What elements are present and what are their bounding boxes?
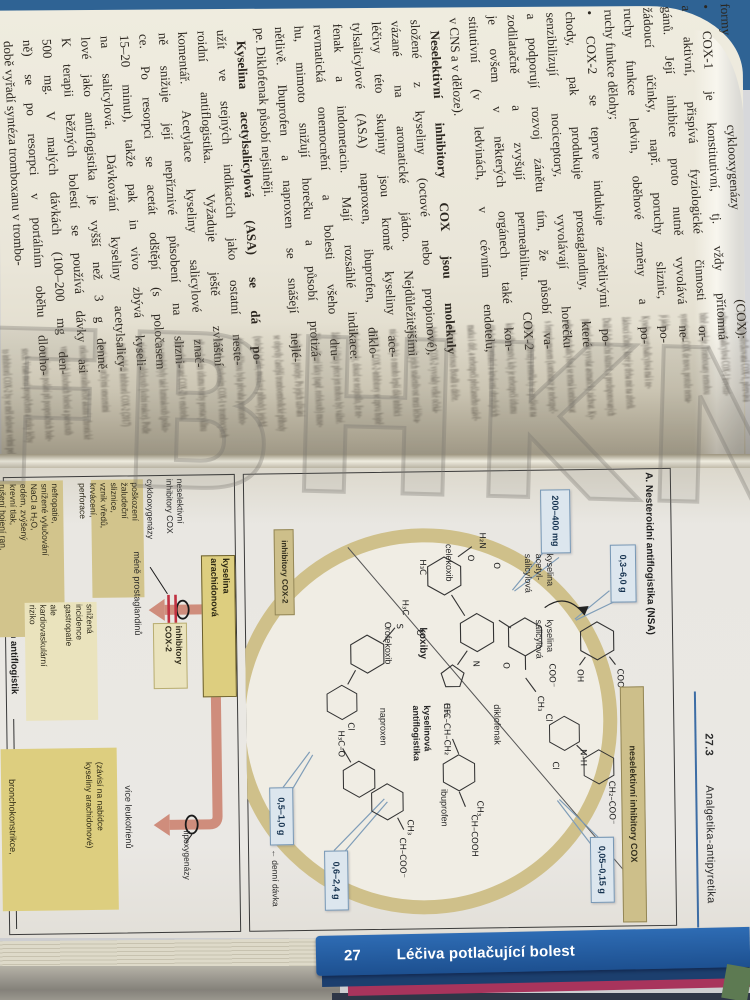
label-bronchokonstrikce: bronchokonstrikce, <box>7 779 18 855</box>
section-number: 27.3 <box>702 733 714 756</box>
label-lipoxygenazy: lipoxygenázy <box>182 831 193 880</box>
dose-box-celekoxib: 200–400 mg <box>540 489 571 553</box>
box-arachidonic-acid: kyselinaarachidonová <box>201 555 237 697</box>
label-vice-leukotrienu: více leukotrienů <box>123 785 134 848</box>
svg-text:COO⁻: COO⁻ <box>546 663 556 687</box>
svg-text:CH₃: CH₃ <box>405 819 415 835</box>
dose-box-naproxen: 0,5–1,0 g <box>269 787 294 845</box>
box-cox2-inhibitors: inhibitoryCOX-2 <box>153 623 188 689</box>
svg-text:N: N <box>470 661 480 667</box>
svg-text:Cl: Cl <box>543 714 553 722</box>
box-reduced-gastropathy: sníženáincidencegastropatie <box>59 602 99 721</box>
box-bronchoconstriction: (závisí na nabídcekyseliny arachidonové)… <box>1 748 119 912</box>
svg-text:CH–COOH: CH–COOH <box>469 815 480 857</box>
dose-box-diklofenak: 0,05–0,15 g <box>590 837 615 903</box>
label-cyklooxygenazy: cyklooxygenázy <box>145 479 156 539</box>
label-neselektivni-inhibitory: neselektivníinhibitory COX <box>163 479 186 534</box>
book-edge-shadow <box>0 966 340 1000</box>
label-ibuprofen: ibuprofen <box>439 789 450 827</box>
daily-dose-note: ← denní dávka <box>270 849 281 906</box>
svg-text:S: S <box>394 624 404 630</box>
label-kyselina-acetylsalicylova: kyselinaacetyl-salicylová <box>522 553 556 592</box>
section-header-rule <box>694 692 699 928</box>
svg-text:N–H: N–H <box>578 749 588 766</box>
section-header: 27.3 Analgetika-antipyretika <box>702 733 717 933</box>
svg-text:H₃C–O: H₃C–O <box>335 730 345 757</box>
svg-text:Cl: Cl <box>345 722 355 730</box>
label-rofekoxib: rofekoxib <box>383 628 394 665</box>
dose-box-ibuprofen: 0,6–2,4 g <box>324 850 349 910</box>
plate-page-content: 27.3 Analgetika-antipyretika A. Nesteroi… <box>0 463 750 943</box>
svg-text:CH₂–COO⁻: CH₂–COO⁻ <box>606 781 617 825</box>
label-koxiby: koxiby <box>417 627 428 659</box>
svg-text:Cl: Cl <box>550 761 560 769</box>
note-zavisi: (závisí na nabídcekyseliny arachidonové) <box>79 762 106 849</box>
svg-text:OH: OH <box>575 669 585 682</box>
label-kyselina-salicylova: kyselinasalicylová <box>533 619 556 658</box>
chapter-title: Léčiva potlačující bolest <box>396 942 575 963</box>
svg-text:H₃C: H₃C <box>417 559 427 575</box>
svg-text:H₂N: H₂N <box>477 532 487 548</box>
svg-text:H₃C–CH–CH₂: H₃C–CH–CH₂ <box>441 703 452 755</box>
svg-text:O: O <box>500 662 510 669</box>
label-mene-prostaglandinu: méně prostaglandinů <box>132 551 143 635</box>
cox2-inhibitors-band: inhibitory COX-2 <box>274 529 295 615</box>
page-fold-shadow <box>0 322 750 468</box>
svg-text:H₃C: H₃C <box>400 600 410 616</box>
svg-text:CH–COO⁻: CH–COO⁻ <box>397 838 408 879</box>
ring-label-nonselective-cox: neselektivní inhibitory COX <box>620 686 647 922</box>
label-diklofenak: diklofenak <box>492 704 503 745</box>
svg-text:O: O <box>491 562 501 569</box>
label-celekoxib: celekoxib <box>444 544 455 582</box>
label-naproxen: naproxen <box>378 708 389 746</box>
book-photo: formy cyklooxygenázy (COX):• COX-1 je ko… <box>0 0 750 1000</box>
background-book-corner <box>721 964 750 1000</box>
box-cardiovascular-risk: alekardiovaskulárníriziko <box>25 602 63 720</box>
dose-box-asa: 0,3–6,0 g <box>610 544 637 602</box>
svg-text:CH₃: CH₃ <box>535 696 545 712</box>
section-title: Analgetika-antipyretika <box>703 785 717 903</box>
svg-text:O: O <box>465 555 475 562</box>
label-kyselinova-antiflogistika: kyselinováantiflogistika <box>408 705 433 761</box>
chapter-number: 27 <box>344 947 361 964</box>
